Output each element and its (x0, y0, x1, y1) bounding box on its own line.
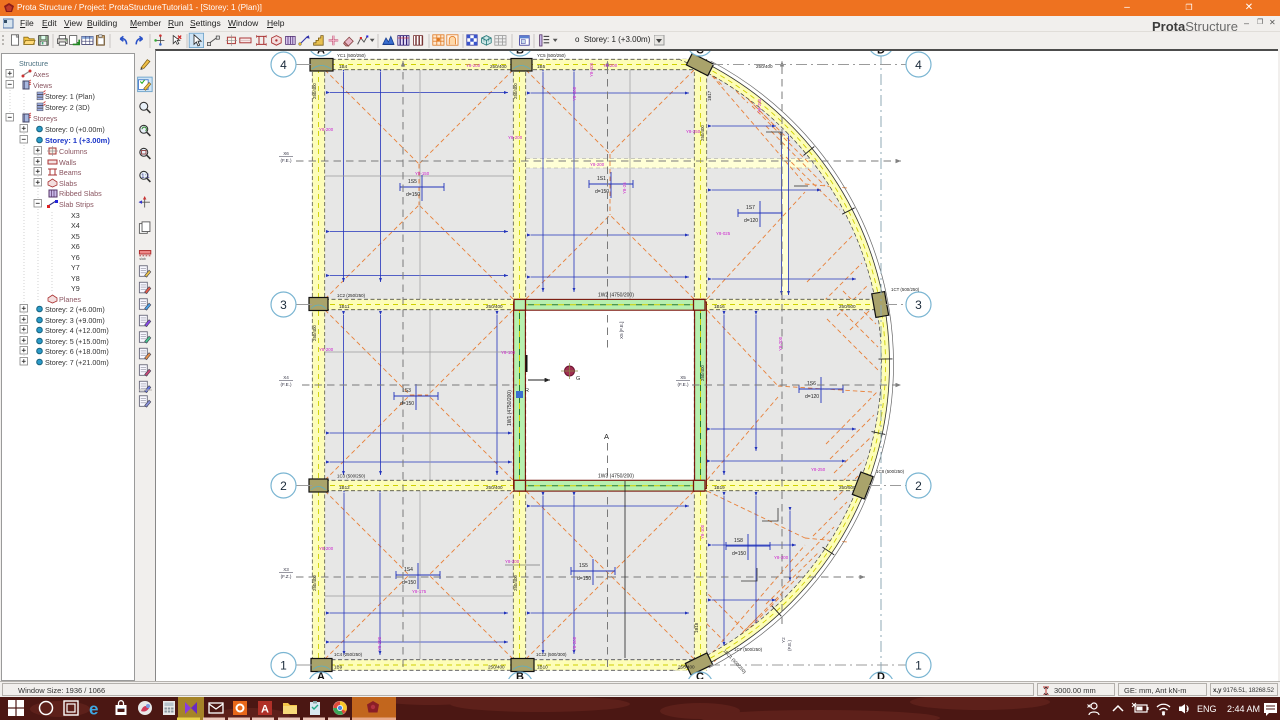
svg-text:ENG: ENG (1197, 704, 1217, 714)
svg-text:Y8-200: Y8-200 (589, 62, 594, 77)
svg-text:3: 3 (280, 298, 287, 312)
svg-text:Y8-200: Y8-200 (778, 336, 783, 351)
svg-text:Y7: Y7 (71, 263, 80, 272)
svg-text:1S6: 1S6 (807, 381, 816, 387)
svg-text:Y8-200: Y8-200 (466, 63, 481, 68)
svg-text:Y8-025: Y8-025 (716, 231, 731, 236)
svg-text:1W1 (4750/200): 1W1 (4750/200) (507, 390, 513, 426)
svg-text:Y8-175: Y8-175 (412, 589, 427, 594)
svg-text:1B4: 1B4 (339, 64, 348, 69)
svg-text:1B12: 1B12 (339, 485, 350, 490)
svg-text:d=150: d=150 (402, 580, 416, 586)
svg-text:1C4 (250/250): 1C4 (250/250) (334, 652, 363, 657)
svg-text:X4: X4 (283, 375, 289, 380)
svg-text:Y8-200: Y8-200 (505, 559, 520, 564)
svg-text:Storey: 1 (Plan): Storey: 1 (Plan) (45, 92, 95, 101)
svg-text:Axes: Axes (33, 70, 49, 79)
svg-text:1S8: 1S8 (734, 538, 743, 544)
svg-text:d=120: d=120 (805, 394, 819, 400)
svg-text:Beams: Beams (59, 168, 82, 177)
svg-text:1S5: 1S5 (579, 563, 588, 569)
svg-text:250/400: 250/400 (678, 665, 695, 670)
svg-text:Y8-200: Y8-200 (774, 555, 789, 560)
svg-text:B: B (516, 671, 524, 679)
svg-text:1:1: 1:1 (141, 173, 150, 180)
svg-text:A: A (604, 432, 609, 441)
svg-text:(F.Z.): (F.Z.) (281, 574, 292, 579)
svg-text:2: 2 (915, 479, 922, 493)
svg-text:X5: X5 (71, 232, 80, 241)
svg-text:Y8-150: Y8-150 (415, 171, 430, 176)
svg-text:d=150: d=150 (400, 401, 414, 407)
svg-text:Columns: Columns (59, 147, 88, 156)
svg-text:Y9: Y9 (71, 284, 80, 293)
svg-text:C: C (696, 671, 704, 679)
svg-text:X3: X3 (283, 567, 289, 572)
svg-text:4: 4 (915, 58, 922, 72)
svg-text:D: D (877, 51, 885, 57)
svg-text:X5 [F.E.]: X5 [F.E.] (619, 322, 624, 339)
svg-text:Y8-250: Y8-250 (686, 129, 701, 134)
svg-text:YC5 (500/250): YC5 (500/250) (537, 53, 566, 58)
svg-text:X6: X6 (71, 242, 80, 251)
svg-text:1S7: 1S7 (746, 205, 755, 211)
svg-text:250/400: 250/400 (513, 83, 518, 99)
svg-text:Y8-25: Y8-25 (622, 182, 627, 194)
svg-text:250/400: 250/400 (488, 664, 505, 669)
svg-text:250/400: 250/400 (700, 365, 705, 381)
svg-text:250/400: 250/400 (486, 304, 503, 309)
svg-text:d=120: d=120 (744, 218, 758, 224)
svg-text:1B19: 1B19 (714, 485, 725, 490)
svg-text:1C3 (500/250): 1C3 (500/250) (337, 474, 366, 479)
svg-text:G: G (576, 376, 580, 382)
svg-text:Storey: 7 (+21.00m): Storey: 7 (+21.00m) (45, 358, 109, 367)
svg-text:2: 2 (280, 479, 287, 493)
svg-text:1: 1 (280, 659, 287, 673)
svg-text:YC1 (500/250): YC1 (500/250) (337, 53, 366, 58)
svg-text:1B17: 1B17 (707, 90, 712, 101)
svg-text:1B11: 1B11 (339, 304, 350, 309)
svg-text:250/400: 250/400 (756, 64, 773, 69)
svg-text:(F.E.): (F.E.) (787, 640, 792, 651)
svg-text:1C7 (500/250): 1C7 (500/250) (734, 647, 763, 652)
svg-text:Storey: 1 (+3.00m): Storey: 1 (+3.00m) (45, 136, 110, 145)
svg-text:Planes: Planes (59, 295, 81, 304)
svg-text:(F.E.): (F.E.) (678, 382, 689, 387)
svg-text:(F.E.): (F.E.) (281, 158, 292, 163)
svg-text:1B10: 1B10 (537, 664, 548, 669)
svg-text:4: 4 (280, 58, 287, 72)
svg-text:Slab Strips: Slab Strips (59, 200, 94, 209)
svg-text:Storey: 5 (+15.00m): Storey: 5 (+15.00m) (45, 337, 109, 346)
svg-text:Y8-100: Y8-100 (700, 524, 705, 539)
svg-text:Slabs: Slabs (59, 179, 77, 188)
svg-text:Y8-200: Y8-200 (377, 636, 382, 651)
svg-text:d=150: d=150 (406, 192, 420, 198)
svg-text:250/400: 250/400 (312, 575, 317, 591)
svg-text:Y8-200: Y8-200 (572, 86, 577, 101)
svg-text:R: R (525, 388, 529, 394)
svg-text:250/400: 250/400 (490, 64, 507, 69)
svg-text:1B18: 1B18 (694, 622, 699, 633)
svg-text:1B9: 1B9 (334, 664, 343, 669)
svg-text:Y8-200: Y8-200 (603, 63, 618, 68)
svg-text:Y8-250: Y8-250 (811, 467, 826, 472)
svg-text:(F.E.): (F.E.) (281, 382, 292, 387)
svg-text:1C2 (250/250): 1C2 (250/250) (337, 293, 366, 298)
svg-text:2:44 AM: 2:44 AM (1227, 704, 1260, 714)
svg-text:A: A (317, 51, 325, 57)
svg-text:1: 1 (915, 659, 922, 673)
svg-text:Y8-200: Y8-200 (508, 135, 523, 140)
svg-text:Storey: 2 (+6.00m): Storey: 2 (+6.00m) (45, 305, 105, 314)
svg-text:Y8-200: Y8-200 (319, 347, 334, 352)
svg-text:1S5: 1S5 (408, 179, 417, 185)
svg-text:3: 3 (915, 298, 922, 312)
svg-text:250/400: 250/400 (513, 575, 518, 591)
svg-text:e: e (89, 700, 98, 719)
svg-text:1BC1 (500/250): 1BC1 (500/250) (722, 648, 747, 674)
svg-text:1C12 (500/300): 1C12 (500/300) (536, 652, 567, 657)
svg-text:Storey: 3 (+9.00m): Storey: 3 (+9.00m) (45, 316, 105, 325)
svg-text:Y2: Y2 (781, 637, 786, 643)
svg-text:1B5: 1B5 (537, 64, 546, 69)
svg-text:250/400: 250/400 (312, 325, 317, 341)
svg-text:1CT (500/250): 1CT (500/250) (891, 287, 920, 292)
svg-text:1W3 (4750/200): 1W3 (4750/200) (598, 474, 634, 480)
svg-text:Storey: 2 (3D): Storey: 2 (3D) (45, 103, 90, 112)
svg-text:d=150: d=150 (732, 551, 746, 557)
svg-text:Y8-200: Y8-200 (319, 546, 334, 551)
svg-text:B: B (516, 51, 524, 57)
svg-text:250/400: 250/400 (312, 83, 317, 99)
svg-text:1W2 (4750/200): 1W2 (4750/200) (598, 293, 634, 299)
svg-text:Y8-200: Y8-200 (572, 636, 577, 651)
svg-text:Views: Views (33, 81, 52, 90)
svg-text:Ribbed Slabs: Ribbed Slabs (59, 189, 102, 198)
svg-text:X4: X4 (71, 221, 80, 230)
svg-text:Storey: 0 (+0.00m): Storey: 0 (+0.00m) (45, 125, 105, 134)
svg-text:Y8: Y8 (71, 274, 80, 283)
svg-text:X3: X3 (71, 211, 80, 220)
svg-text:slab: slab (139, 257, 145, 261)
svg-text:1S1: 1S1 (597, 176, 606, 182)
svg-text:D: D (877, 671, 885, 679)
svg-text:Storey: 4 (+12.00m): Storey: 4 (+12.00m) (45, 326, 109, 335)
svg-text:X6: X6 (283, 151, 289, 156)
svg-text:Y8-200: Y8-200 (319, 127, 334, 132)
svg-text:A: A (317, 671, 325, 679)
svg-text:250/500: 250/500 (839, 304, 856, 309)
svg-text:Y8-250: Y8-250 (757, 98, 762, 113)
svg-text:1B16: 1B16 (714, 304, 725, 309)
svg-text:Y6: Y6 (71, 253, 80, 262)
svg-text:1C8 (500/250): 1C8 (500/250) (876, 469, 905, 474)
svg-text:1S4: 1S4 (404, 567, 413, 573)
svg-text:250/500: 250/500 (839, 485, 856, 490)
svg-text:X5: X5 (680, 375, 686, 380)
svg-text:Walls: Walls (59, 158, 77, 167)
svg-text:Y8-200: Y8-200 (590, 162, 605, 167)
svg-text:250/400: 250/400 (700, 125, 705, 141)
svg-text:Storeys: Storeys (33, 114, 58, 123)
svg-text:Y8-100: Y8-100 (501, 350, 516, 355)
svg-text:A: A (261, 704, 269, 716)
svg-text:250/400: 250/400 (486, 485, 503, 490)
svg-text:Structure: Structure (19, 59, 48, 68)
svg-text:C: C (696, 51, 704, 57)
svg-text:Storey: 6 (+18.00m): Storey: 6 (+18.00m) (45, 347, 109, 356)
